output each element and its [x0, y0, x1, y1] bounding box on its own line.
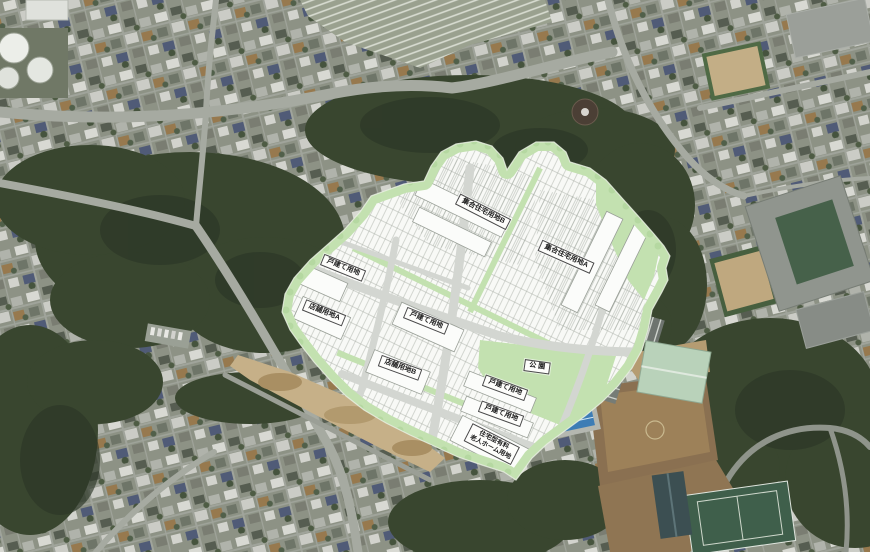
gymnasium-mint-roof — [637, 341, 711, 404]
aerial-map-view: 集合住宅用地B 集合住宅用地A 戸建て用地 店舗用地A 戸建て用地 店舗用地B … — [0, 0, 870, 552]
storage-tanks — [0, 28, 68, 98]
water-tower — [572, 99, 598, 125]
satellite-base — [0, 0, 870, 552]
large-white-building — [26, 0, 68, 20]
